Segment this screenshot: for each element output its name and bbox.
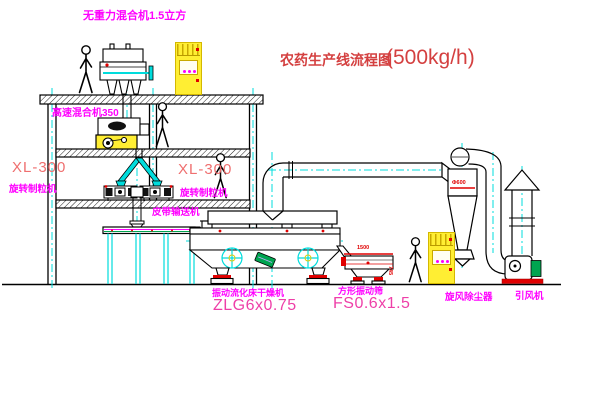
cabinet-panel <box>179 60 198 75</box>
cyclone-separator <box>448 148 510 274</box>
indicator-light-red <box>449 238 452 241</box>
fluid-bed-dryer <box>190 221 340 284</box>
cabinet-panel <box>432 250 451 265</box>
operator-figure <box>409 238 421 282</box>
indicator-light-red <box>449 268 452 271</box>
indicator-light-red <box>196 48 199 51</box>
high-speed-mixer-label: 高速混合机350 <box>52 109 119 119</box>
granulator-right-name-label: 旋转制粒机 <box>180 189 228 199</box>
cyclone-dia-dim: Φ600 <box>452 181 466 187</box>
granulator-right-model-label: XL-300 <box>178 162 232 177</box>
dryer-model-label: ZLG6x0.75 <box>213 298 297 314</box>
floor-slab-top <box>40 95 263 104</box>
control-cabinet <box>428 232 455 284</box>
fan-label: 引风机 <box>515 292 544 302</box>
screen-length-dim: 1500 <box>357 246 369 252</box>
page-title-capacity: (500kg/h) <box>386 47 475 68</box>
vibrating-screen <box>337 246 393 284</box>
indicator-lights <box>436 260 439 263</box>
granulator-left-model-label: XL-300 <box>12 160 66 175</box>
operator-figure <box>156 103 168 147</box>
screen-height-dim: 745 <box>387 266 393 275</box>
induced-draft-fan <box>502 256 543 284</box>
granulator-left-name-label: 旋转制粒机 <box>9 185 57 195</box>
indicator-light-red <box>196 79 199 82</box>
screen-model-label: FS0.6x1.5 <box>333 296 410 312</box>
process-flow-diagram: 无重力混合机1.5立方 农药生产线流程图 (500kg/h) 高速混合机350 … <box>0 0 600 403</box>
operator-figure <box>80 46 93 93</box>
indicator-lights <box>183 70 186 73</box>
y-chute <box>116 158 162 186</box>
gravity-mixer-label: 无重力混合机1.5立方 <box>83 11 186 22</box>
belt-conveyor-label: 皮带输送机 <box>152 208 200 218</box>
page-title: 农药生产线流程图 <box>280 53 392 67</box>
control-cabinet <box>175 42 202 95</box>
exhaust-stack <box>505 170 539 256</box>
cyclone-label: 旋风除尘器 <box>445 293 493 303</box>
